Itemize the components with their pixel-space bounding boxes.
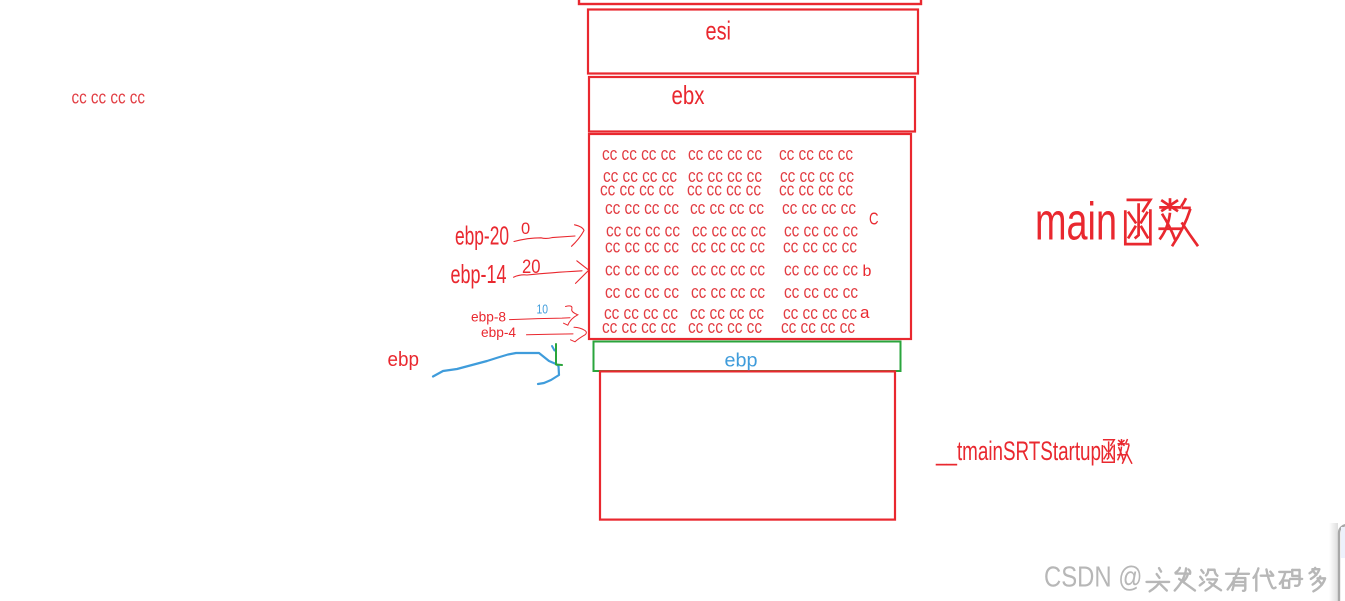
svg-text:cc cc cc cc: cc cc cc cc: [691, 282, 765, 302]
svg-text:cc cc cc cc: cc cc cc cc: [782, 198, 856, 218]
svg-text:a: a: [860, 303, 870, 322]
svg-text:cc cc cc cc: cc cc cc cc: [605, 198, 679, 218]
svg-text:0: 0: [521, 220, 530, 238]
svg-text:CSDN @: CSDN @: [1044, 562, 1142, 594]
svg-text:cc cc cc cc: cc cc cc cc: [779, 144, 853, 164]
svg-text:cc cc cc cc: cc cc cc cc: [784, 260, 858, 280]
svg-text:cc cc cc cc: cc cc cc cc: [605, 236, 679, 256]
svg-text:cc cc cc cc: cc cc cc cc: [781, 317, 855, 337]
svg-text:cc cc cc cc: cc cc cc cc: [783, 236, 857, 256]
svg-text:esi: esi: [706, 16, 732, 46]
svg-text:cc cc cc cc: cc cc cc cc: [779, 179, 853, 199]
svg-text:cc cc cc cc: cc cc cc cc: [688, 317, 762, 337]
svg-text:10: 10: [537, 302, 549, 317]
svg-text:main: main: [1035, 193, 1117, 252]
svg-text:cc cc cc cc: cc cc cc cc: [690, 198, 764, 218]
svg-text:ebp-4: ebp-4: [481, 324, 516, 340]
svg-text:cc cc cc cc: cc cc cc cc: [602, 144, 676, 164]
svg-text:cc cc cc cc: cc cc cc cc: [687, 179, 761, 199]
svg-text:ebp-14: ebp-14: [451, 259, 507, 289]
svg-text:cc cc cc cc: cc cc cc cc: [605, 282, 679, 302]
svg-text:cc cc cc cc: cc cc cc cc: [691, 236, 765, 256]
svg-text:cc cc cc cc: cc cc cc cc: [605, 260, 679, 280]
svg-text:ebp-8: ebp-8: [471, 308, 506, 324]
svg-text:b: b: [863, 263, 872, 280]
svg-text:cc cc cc cc: cc cc cc cc: [602, 317, 676, 337]
svg-text:cc cc cc cc: cc cc cc cc: [72, 88, 146, 108]
svg-text:__tmainSRTStartup: __tmainSRTStartup: [935, 436, 1101, 466]
svg-text:ebx: ebx: [672, 80, 705, 110]
svg-text:cc cc cc cc: cc cc cc cc: [600, 179, 674, 199]
svg-text:ebp: ebp: [725, 350, 758, 371]
svg-text:ebp-20: ebp-20: [455, 221, 509, 251]
svg-text:cc cc cc cc: cc cc cc cc: [691, 260, 765, 280]
svg-text:ebp: ebp: [388, 349, 420, 371]
svg-text:cc cc cc cc: cc cc cc cc: [784, 282, 858, 302]
svg-text:C: C: [869, 209, 879, 229]
svg-text:cc cc cc cc: cc cc cc cc: [688, 144, 762, 164]
